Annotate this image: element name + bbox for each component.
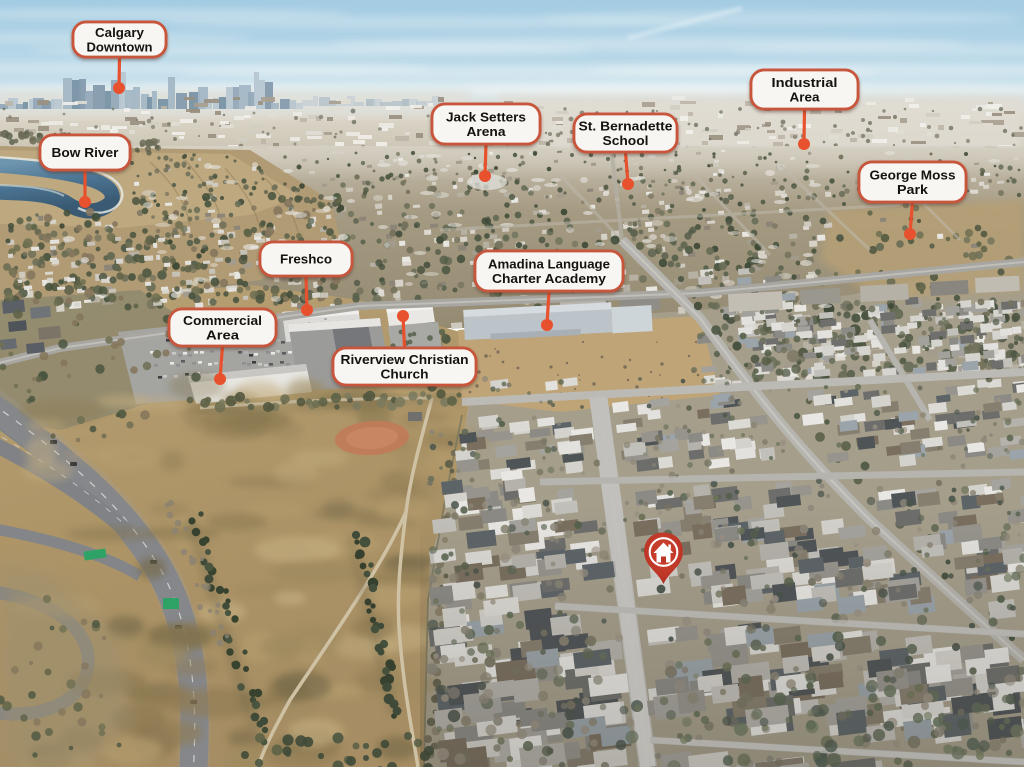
svg-text:Bow River: Bow River [52,145,119,160]
svg-text:Freshco: Freshco [280,252,332,267]
svg-text:School: School [603,133,649,148]
svg-text:Church: Church [381,367,429,382]
svg-text:George Moss: George Moss [870,167,956,182]
svg-text:Jack Setters: Jack Setters [446,109,526,124]
svg-text:Amadina Language: Amadina Language [488,256,610,271]
svg-text:Arena: Arena [467,124,507,139]
svg-text:Commercial: Commercial [183,313,262,328]
svg-text:Area: Area [206,328,240,343]
svg-text:Riverview Christian: Riverview Christian [341,352,469,367]
svg-text:Downtown: Downtown [87,40,153,55]
svg-text:Calgary: Calgary [95,25,145,40]
svg-text:Park: Park [897,182,929,197]
svg-text:Industrial: Industrial [772,75,838,90]
svg-text:St. Bernadette: St. Bernadette [579,118,673,133]
svg-text:Charter Academy: Charter Academy [492,271,607,286]
svg-text:Area: Area [790,90,821,105]
